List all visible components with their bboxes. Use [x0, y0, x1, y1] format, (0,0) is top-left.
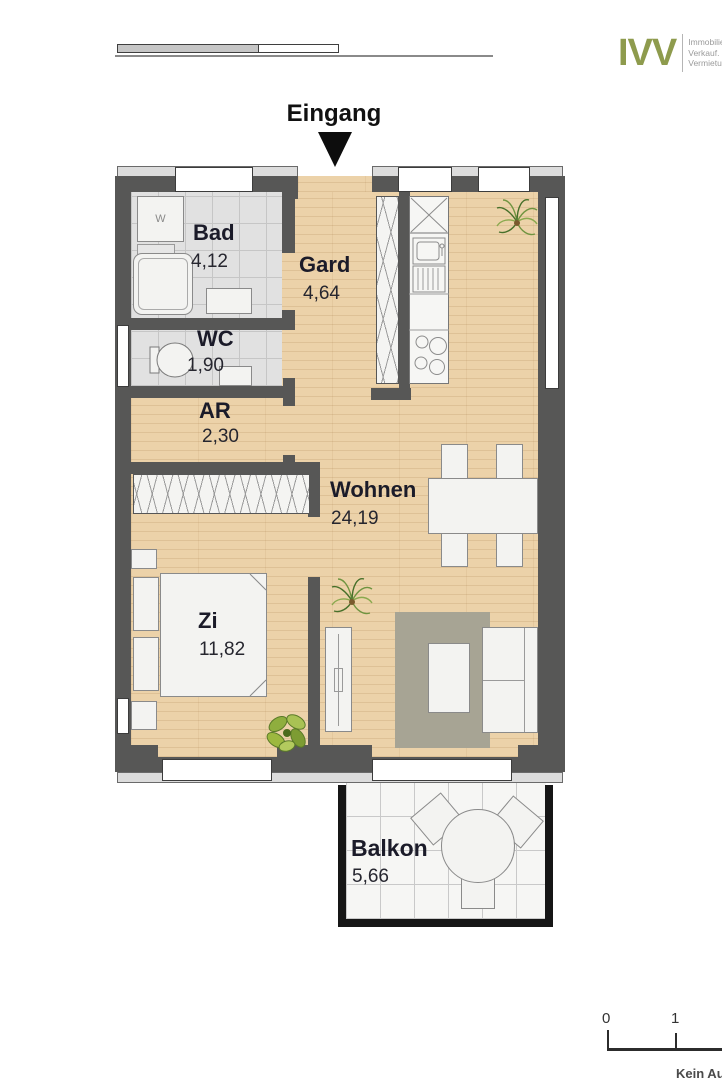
balcony-frame-left	[338, 785, 346, 927]
plant-icon	[264, 708, 310, 756]
header-rule	[115, 55, 493, 57]
wardrobe-hall	[133, 474, 310, 514]
wall-bath-right-lower	[282, 310, 295, 330]
room-label-wc: WC	[197, 326, 234, 352]
room-area-gard: 4,64	[303, 283, 340, 305]
dining-chair-1	[441, 444, 468, 480]
footer-partial-text: Kein Au	[676, 1066, 722, 1080]
shower	[133, 253, 193, 315]
plant-icon	[495, 196, 539, 244]
wall-section-gray	[117, 44, 259, 53]
wall-stub-bottom-right	[518, 745, 565, 757]
company-logo: IVV Immobilien. Verkauf. Vermietung.	[618, 34, 722, 72]
room-area-ar: 2,30	[202, 426, 239, 448]
window-bottom-zi	[162, 759, 272, 781]
room-area-bad: 4,12	[191, 251, 228, 273]
room-label-balkon: Balkon	[351, 835, 428, 862]
room-area-zi: 11,82	[199, 639, 245, 661]
wall-ar-stub	[283, 455, 295, 462]
logo-divider	[682, 34, 683, 72]
washing-machine: W	[137, 196, 184, 242]
balcony-table	[441, 809, 515, 883]
room-label-ar: AR	[199, 398, 231, 424]
wall-section-white	[258, 44, 339, 53]
nightstand-top	[131, 549, 157, 569]
wardrobe-gard	[376, 196, 399, 384]
window-top-kitchen-1	[398, 167, 452, 192]
dining-chair-3	[441, 531, 468, 567]
room-label-zi: Zi	[198, 608, 218, 634]
window-top-bath	[175, 167, 253, 192]
wall-kitchen-stub	[371, 388, 411, 400]
room-label-gard: Gard	[299, 252, 350, 278]
tv-board-knob	[334, 668, 343, 692]
window-balcony-door	[372, 759, 512, 781]
wall-wc-stub	[283, 378, 295, 406]
bed	[160, 573, 267, 697]
nightstand-bottom	[131, 701, 157, 730]
logo-tagline: Immobilien. Verkauf. Vermietung.	[688, 37, 722, 69]
coffee-table	[428, 643, 470, 713]
kitchen-counter	[409, 196, 449, 384]
scale-mark-0: 0	[602, 1010, 610, 1027]
room-area-balkon: 5,66	[352, 866, 389, 888]
scale-tick-0	[607, 1030, 609, 1049]
sofa	[482, 627, 538, 733]
tv-board	[325, 627, 352, 732]
room-label-bad: Bad	[193, 220, 235, 246]
pillow-top	[133, 577, 159, 631]
bath-sink	[206, 288, 252, 314]
room-area-wohnen: 24,19	[331, 508, 379, 530]
logo-brand-text: IVV	[618, 34, 676, 72]
shower-tray	[138, 258, 188, 310]
balcony-frame-right	[545, 785, 553, 927]
wall-stub-bottom-left	[115, 745, 158, 757]
sofa-back-line	[524, 628, 525, 732]
washing-machine-label: W	[155, 213, 165, 225]
window-top-kitchen-2	[478, 167, 530, 192]
balcony-frame-bottom	[338, 919, 553, 927]
scale-tick-1	[675, 1033, 677, 1049]
floor-entry-gap	[298, 176, 372, 192]
window-left-zi	[117, 698, 129, 734]
scale-line	[607, 1048, 722, 1051]
plant-icon	[327, 575, 377, 623]
dining-chair-2	[496, 444, 523, 480]
logo-tagline-line1: Immobilien.	[688, 37, 722, 48]
window-right-kitchen	[545, 197, 559, 389]
logo-tagline-line3: Vermietung.	[688, 58, 722, 69]
logo-tagline-line2: Verkauf.	[688, 48, 722, 59]
scale-mark-1: 1	[671, 1010, 679, 1027]
wall-left	[115, 192, 131, 757]
room-label-wohnen: Wohnen	[330, 477, 416, 503]
wall-bath-right-upper	[282, 192, 295, 253]
dining-table	[428, 478, 538, 534]
window-left-wc	[117, 325, 129, 387]
pillow-bottom	[133, 637, 159, 691]
floorplan-page: IVV Immobilien. Verkauf. Vermietung. Ein…	[0, 0, 722, 1080]
entrance-label: Eingang	[269, 100, 399, 128]
wall-ar-bottom	[115, 462, 320, 474]
room-area-wc: 1,90	[187, 355, 224, 377]
entrance-arrow-icon	[318, 132, 352, 167]
sofa-seat-line	[483, 680, 524, 681]
wall-wc-bottom	[131, 386, 295, 398]
dining-chair-4	[496, 531, 523, 567]
